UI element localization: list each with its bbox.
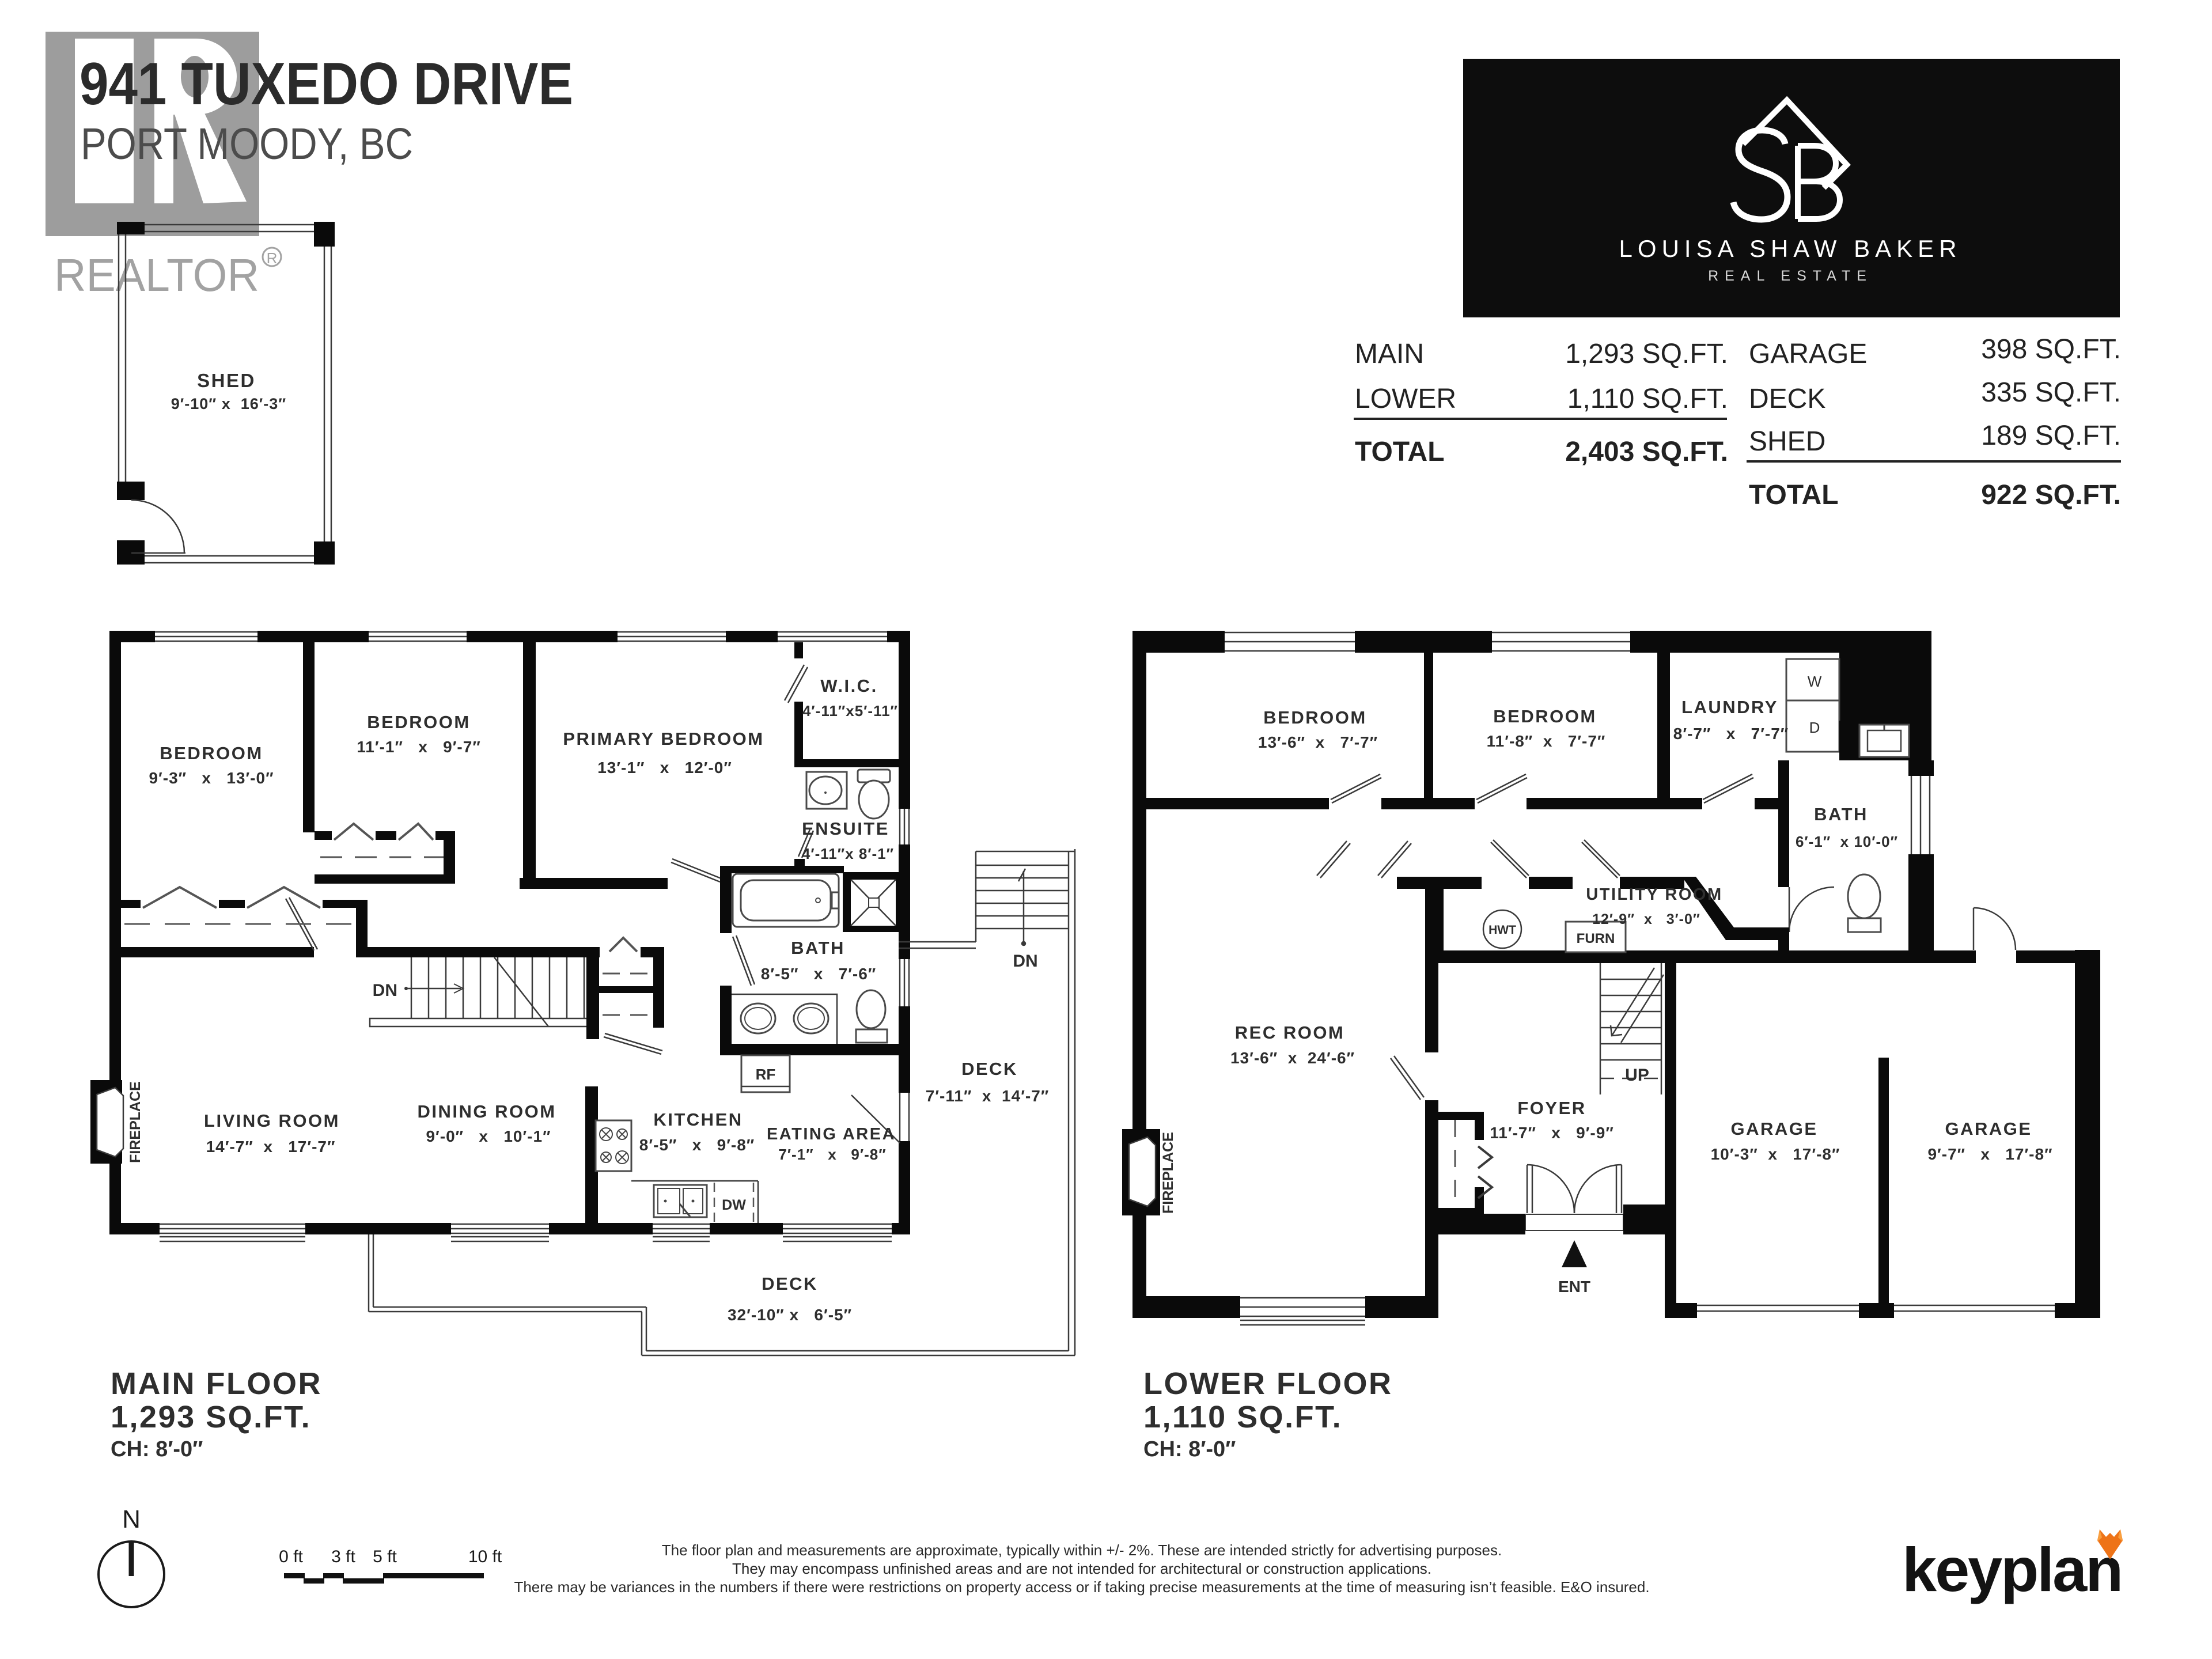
svg-text:REAL ESTATE: REAL ESTATE (1708, 268, 1873, 284)
svg-text:1,293 SQ.FT.: 1,293 SQ.FT. (111, 1400, 311, 1434)
svg-text:LIVING ROOM: LIVING ROOM (204, 1111, 340, 1131)
svg-text:FOYER: FOYER (1517, 1098, 1586, 1118)
svg-text:11′-8″ x 7′-7″: 11′-8″ x 7′-7″ (1487, 732, 1606, 750)
svg-text:DW: DW (722, 1197, 746, 1213)
svg-text:SHED: SHED (197, 370, 256, 391)
svg-text:0 ft: 0 ft (279, 1547, 303, 1566)
svg-text:922 SQ.FT.: 922 SQ.FT. (1981, 480, 2121, 510)
svg-text:1,293 SQ.FT.: 1,293 SQ.FT. (1565, 339, 1728, 369)
svg-text:BEDROOM: BEDROOM (367, 712, 470, 732)
svg-text:ENT: ENT (1558, 1278, 1590, 1296)
svg-text:They may encompass unfinished: They may encompass unfinished areas and … (732, 1560, 1431, 1577)
svg-text:DN: DN (373, 981, 397, 1000)
svg-text:EATING AREA: EATING AREA (767, 1125, 896, 1143)
svg-text:BEDROOM: BEDROOM (160, 743, 263, 763)
svg-text:8′-5″ x 9′-8″: 8′-5″ x 9′-8″ (639, 1136, 755, 1154)
svg-text:DN: DN (1013, 952, 1037, 971)
svg-text:D: D (1809, 719, 1820, 736)
svg-text:FIREPLACE: FIREPLACE (127, 1081, 143, 1163)
svg-text:DECK: DECK (961, 1059, 1018, 1079)
svg-text:398 SQ.FT.: 398 SQ.FT. (1981, 334, 2121, 365)
svg-text:7′-1″ x 9′-8″: 7′-1″ x 9′-8″ (778, 1146, 886, 1163)
svg-text:TOTAL: TOTAL (1749, 480, 1839, 510)
svg-text:DECK: DECK (1749, 384, 1825, 414)
svg-text:11′-1″ x 9′-7″: 11′-1″ x 9′-7″ (357, 738, 480, 756)
svg-text:TOTAL: TOTAL (1355, 437, 1445, 467)
svg-text:keyplan: keyplan (1902, 1535, 2122, 1604)
svg-text:LOUISA SHAW BAKER: LOUISA SHAW BAKER (1619, 235, 1962, 262)
svg-text:MAIN FLOOR: MAIN FLOOR (111, 1366, 322, 1401)
svg-text:13′-1″ x 12′-0″: 13′-1″ x 12′-0″ (597, 759, 732, 777)
svg-text:W: W (1808, 673, 1822, 690)
svg-text:1,110 SQ.FT.: 1,110 SQ.FT. (1567, 384, 1728, 414)
svg-text:CH: 8′-0″: CH: 8′-0″ (111, 1437, 203, 1461)
svg-text:13′-6″ x 7′-7″: 13′-6″ x 7′-7″ (1258, 733, 1378, 751)
svg-text:9′-3″ x 13′-0″: 9′-3″ x 13′-0″ (149, 769, 274, 787)
svg-text:GARAGE: GARAGE (1749, 339, 1867, 369)
svg-text:FIREPLACE: FIREPLACE (1160, 1132, 1176, 1214)
svg-text:UTILITY ROOM: UTILITY ROOM (1586, 885, 1722, 904)
svg-text:REALTOR: REALTOR (54, 249, 259, 301)
svg-text:ENSUITE: ENSUITE (802, 819, 889, 839)
svg-text:8′-5″ x 7′-6″: 8′-5″ x 7′-6″ (761, 965, 876, 983)
svg-text:7′-11″ x 14′-7″: 7′-11″ x 14′-7″ (926, 1087, 1049, 1105)
svg-text:DINING ROOM: DINING ROOM (417, 1101, 556, 1122)
svg-text:8′-7″ x 7′-7″: 8′-7″ x 7′-7″ (1673, 725, 1789, 743)
svg-text:MAIN: MAIN (1355, 339, 1424, 369)
svg-text:KITCHEN: KITCHEN (653, 1109, 743, 1130)
svg-text:LOWER FLOOR: LOWER FLOOR (1143, 1366, 1392, 1401)
svg-text:14′-7″ x 17′-7″: 14′-7″ x 17′-7″ (206, 1138, 336, 1156)
svg-text:PRIMARY BEDROOM: PRIMARY BEDROOM (563, 729, 764, 749)
svg-text:9′-0″ x 10′-1″: 9′-0″ x 10′-1″ (426, 1127, 551, 1145)
svg-text:N: N (122, 1505, 141, 1533)
svg-text:HWT: HWT (1488, 923, 1516, 937)
svg-text:9′-7″ x 17′-8″: 9′-7″ x 17′-8″ (1927, 1145, 2052, 1163)
svg-text:BEDROOM: BEDROOM (1263, 707, 1366, 728)
svg-text:32′-10″ x 6′-5″: 32′-10″ x 6′-5″ (728, 1306, 852, 1324)
svg-text:13′-6″ x 24′-6″: 13′-6″ x 24′-6″ (1230, 1049, 1355, 1067)
svg-text:5 ft: 5 ft (373, 1547, 397, 1566)
svg-text:6′-1″ x 10′-0″: 6′-1″ x 10′-0″ (1796, 833, 1898, 850)
svg-text:189 SQ.FT.: 189 SQ.FT. (1981, 421, 2121, 451)
svg-text:GARAGE: GARAGE (1945, 1119, 2032, 1139)
svg-text:PORT MOODY, BC: PORT MOODY, BC (81, 119, 413, 169)
svg-text:941 TUXEDO DRIVE: 941 TUXEDO DRIVE (79, 51, 573, 118)
svg-text:There may be variances in the: There may be variances in the numbers if… (514, 1578, 1649, 1596)
svg-text:4′-11″x5′-11″: 4′-11″x5′-11″ (802, 702, 898, 719)
svg-text:3 ft: 3 ft (331, 1547, 355, 1566)
svg-text:W.I.C.: W.I.C. (820, 676, 877, 696)
svg-text:4′-11″x 8′-1″: 4′-11″x 8′-1″ (802, 845, 894, 862)
svg-text:9′-10″ x 16′-3″: 9′-10″ x 16′-3″ (171, 395, 286, 412)
svg-text:LAUNDRY: LAUNDRY (1681, 697, 1778, 717)
svg-text:The floor plan and measurement: The floor plan and measurements are appr… (662, 1541, 1502, 1559)
svg-text:LOWER: LOWER (1355, 384, 1456, 414)
svg-text:11′-7″ x 9′-9″: 11′-7″ x 9′-9″ (1490, 1124, 1613, 1142)
svg-text:BATH: BATH (1814, 804, 1868, 824)
svg-text:BATH: BATH (791, 938, 845, 958)
svg-text:UP: UP (1625, 1066, 1649, 1085)
svg-text:1,110 SQ.FT.: 1,110 SQ.FT. (1143, 1400, 1342, 1434)
svg-text:DECK: DECK (762, 1274, 818, 1294)
svg-text:10 ft: 10 ft (468, 1547, 502, 1566)
svg-text:SHED: SHED (1749, 426, 1825, 457)
svg-text:335 SQ.FT.: 335 SQ.FT. (1981, 377, 2121, 408)
svg-text:GARAGE: GARAGE (1730, 1119, 1817, 1139)
svg-text:12′-9″ x 3′-0″: 12′-9″ x 3′-0″ (1592, 911, 1700, 927)
svg-text:FURN: FURN (1577, 931, 1615, 946)
svg-text:REC ROOM: REC ROOM (1235, 1022, 1345, 1043)
svg-text:10′-3″ x 17′-8″: 10′-3″ x 17′-8″ (1711, 1145, 1840, 1163)
svg-text:CH: 8′-0″: CH: 8′-0″ (1143, 1437, 1236, 1461)
svg-text:BEDROOM: BEDROOM (1493, 706, 1596, 726)
svg-text:R: R (267, 249, 278, 267)
svg-text:RF: RF (756, 1066, 776, 1083)
svg-text:2,403 SQ.FT.: 2,403 SQ.FT. (1565, 437, 1728, 467)
